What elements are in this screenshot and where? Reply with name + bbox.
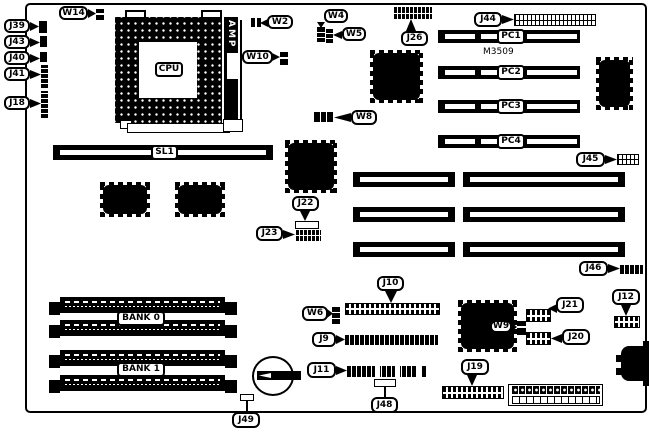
- amp-edge-line: [240, 20, 242, 119]
- callout-w10: W10: [242, 50, 273, 64]
- callout-j40: J40: [4, 51, 30, 65]
- slot-pc3-text: PC3: [501, 102, 520, 111]
- callout-j21: J21: [556, 297, 584, 313]
- callout-w2: W2: [267, 15, 293, 29]
- callout-j19: J19: [461, 359, 489, 375]
- callout-w4: W4: [324, 9, 348, 23]
- header-j26: [393, 7, 432, 19]
- callout-w6-label: W6: [307, 309, 323, 318]
- jumper-w5: [326, 29, 333, 43]
- callout-j23: J23: [256, 226, 283, 241]
- connector-j40: [40, 52, 47, 62]
- callout-j40-label: J40: [9, 54, 25, 63]
- simm-clip-2l: [49, 325, 60, 338]
- isa-slot-1-right: [463, 172, 625, 187]
- callout-j26-label: J26: [407, 34, 423, 43]
- header-j9: [345, 335, 438, 345]
- connector-j43: [40, 36, 47, 47]
- callout-w8: W8: [351, 110, 377, 125]
- callout-w9-label: W9: [493, 322, 509, 331]
- header-j11-gap3: [417, 366, 421, 377]
- keyboard-connector-bracket: [643, 341, 649, 386]
- callout-j45: J45: [576, 152, 605, 167]
- callout-j49: J49: [232, 412, 260, 428]
- callout-w9: W9: [490, 320, 512, 333]
- callout-w5: W5: [342, 27, 366, 41]
- simm-clip-4l: [49, 380, 60, 393]
- simm-clip-3r: [225, 355, 237, 368]
- callout-j23-label: J23: [262, 229, 278, 238]
- callout-j43: J43: [4, 35, 30, 49]
- callout-w14: W14: [59, 6, 88, 20]
- power-connector-pins: [512, 386, 600, 394]
- callout-j22-label: J22: [298, 199, 314, 208]
- chip-qfp-top-right: [596, 57, 633, 110]
- callout-j41-label: J41: [9, 70, 25, 79]
- power-connector-slots: [512, 396, 600, 404]
- callout-j39: J39: [4, 19, 30, 33]
- callout-w6: W6: [302, 306, 328, 321]
- chip-qfp-mid-left: [100, 182, 150, 217]
- cpu-lever-bar: [127, 123, 230, 133]
- callout-j39-label: J39: [9, 22, 25, 31]
- motherboard-diagram: J39 J43 J40 J41 J18 W14 CPU AMP W2 W10 W…: [0, 0, 649, 432]
- keyboard-connector-body: [621, 346, 644, 381]
- bank0-text: BANK 0: [122, 314, 160, 323]
- keyboard-connector-notch2: [616, 368, 622, 375]
- isa-slot-1-left: [353, 172, 455, 187]
- header-j21: [526, 309, 551, 322]
- simm-clip-3l: [49, 355, 60, 368]
- callout-j18-label: J18: [9, 99, 25, 108]
- chip-qfp-mid-center: [175, 182, 225, 217]
- callout-j22: J22: [292, 196, 319, 211]
- isa-slot-3-left: [353, 242, 455, 257]
- simm-clip-2r: [225, 325, 237, 338]
- callout-j11: J11: [307, 362, 336, 378]
- header-j44: [514, 14, 596, 26]
- cpu-label-text: CPU: [159, 65, 180, 74]
- jumper-w2: [251, 18, 261, 27]
- callout-w10-label: W10: [246, 53, 268, 62]
- callout-w14-label: W14: [62, 9, 84, 18]
- callout-j12: J12: [612, 289, 640, 305]
- callout-j12-label: J12: [618, 293, 634, 302]
- isa-slot-3-right: [463, 242, 625, 257]
- callout-j21-label: J21: [562, 301, 578, 310]
- slot-sl1-text: SL1: [155, 148, 173, 157]
- callout-j44: J44: [474, 12, 502, 27]
- callout-j45-label: J45: [583, 155, 599, 164]
- slot-pc4-text: PC4: [501, 137, 520, 146]
- chip-marking-text: M3509: [483, 47, 514, 57]
- keyboard-connector-notch1: [616, 355, 622, 362]
- slot-pc1-text: PC1: [501, 32, 520, 41]
- header-j23: [295, 230, 321, 241]
- callout-j10-label: J10: [383, 279, 399, 288]
- header-j20: [526, 332, 551, 345]
- simm-clip-1l: [49, 302, 60, 315]
- simm-clip-1r: [225, 302, 237, 315]
- jumper-w4: [317, 27, 325, 42]
- cpu-label: CPU: [155, 62, 183, 77]
- callout-j18: J18: [4, 96, 30, 110]
- callout-j20-label: J20: [568, 333, 584, 342]
- slot-pc2-text: PC2: [501, 68, 520, 77]
- callout-j48: J48: [371, 397, 398, 413]
- callout-j20: J20: [562, 329, 590, 345]
- cpu-retention-tab-right: [201, 10, 222, 19]
- callout-j26: J26: [401, 31, 428, 46]
- header-j11-gap2: [395, 366, 400, 377]
- callout-j9: J9: [312, 332, 336, 347]
- header-j45: [617, 154, 639, 165]
- connector-j39: [39, 21, 47, 33]
- connector-j41: [41, 65, 48, 88]
- isa-slot-2-right: [463, 207, 625, 222]
- amp-base: [223, 119, 243, 132]
- header-j19: [442, 386, 504, 399]
- header-j46: [620, 265, 643, 274]
- callout-w4-label: W4: [328, 12, 344, 21]
- bank1-text: BANK 1: [122, 365, 160, 374]
- callout-j41: J41: [4, 67, 30, 81]
- slot-pc1-label: PC1: [497, 29, 525, 44]
- callout-j43-label: J43: [9, 38, 25, 47]
- cpu-retention-tab-left: [125, 10, 146, 19]
- callout-j11-label: J11: [314, 366, 330, 375]
- header-j11: [347, 366, 427, 377]
- chip-qfp-top-center: [370, 50, 423, 103]
- callout-w5-label: W5: [346, 30, 362, 39]
- connector-j18: [41, 91, 48, 118]
- callout-w2-label: W2: [272, 18, 288, 27]
- callout-j46-label: J46: [586, 264, 602, 273]
- slot-sl1-label: SL1: [151, 145, 178, 160]
- callout-j49-label: J49: [238, 416, 254, 425]
- callout-j9-label: J9: [319, 335, 329, 344]
- jumper-w14: [96, 9, 104, 20]
- callout-j19-label: J19: [467, 363, 483, 372]
- header-j12: [614, 316, 640, 328]
- isa-slot-2-left: [353, 207, 455, 222]
- header-j48: [374, 379, 396, 387]
- header-j11-gap1: [375, 366, 380, 377]
- header-j49: [240, 394, 254, 401]
- bank1-label: BANK 1: [117, 362, 165, 377]
- simm-clip-4r: [225, 380, 237, 393]
- amp-notch: [227, 53, 238, 79]
- callout-j10: J10: [377, 276, 404, 291]
- chip-qfp-mid-right: [285, 140, 337, 193]
- slot-pc4-label: PC4: [497, 134, 525, 149]
- chip-marking: M3509: [483, 48, 514, 57]
- jumper-w6: [332, 307, 340, 324]
- jumper-w10: [280, 52, 288, 65]
- callout-w8-label: W8: [356, 113, 372, 122]
- bank0-label: BANK 0: [117, 311, 165, 326]
- header-j22: [295, 221, 319, 229]
- callout-j46: J46: [579, 261, 608, 276]
- callout-j48-label: J48: [377, 401, 393, 410]
- slot-pc2-label: PC2: [497, 65, 525, 80]
- jumper-w8: [314, 112, 333, 122]
- callout-j44-label: J44: [480, 15, 496, 24]
- header-j10: [345, 303, 440, 315]
- jumper-w9: [517, 321, 526, 335]
- slot-pc3-label: PC3: [497, 99, 525, 114]
- simm-slot-4: [60, 375, 225, 391]
